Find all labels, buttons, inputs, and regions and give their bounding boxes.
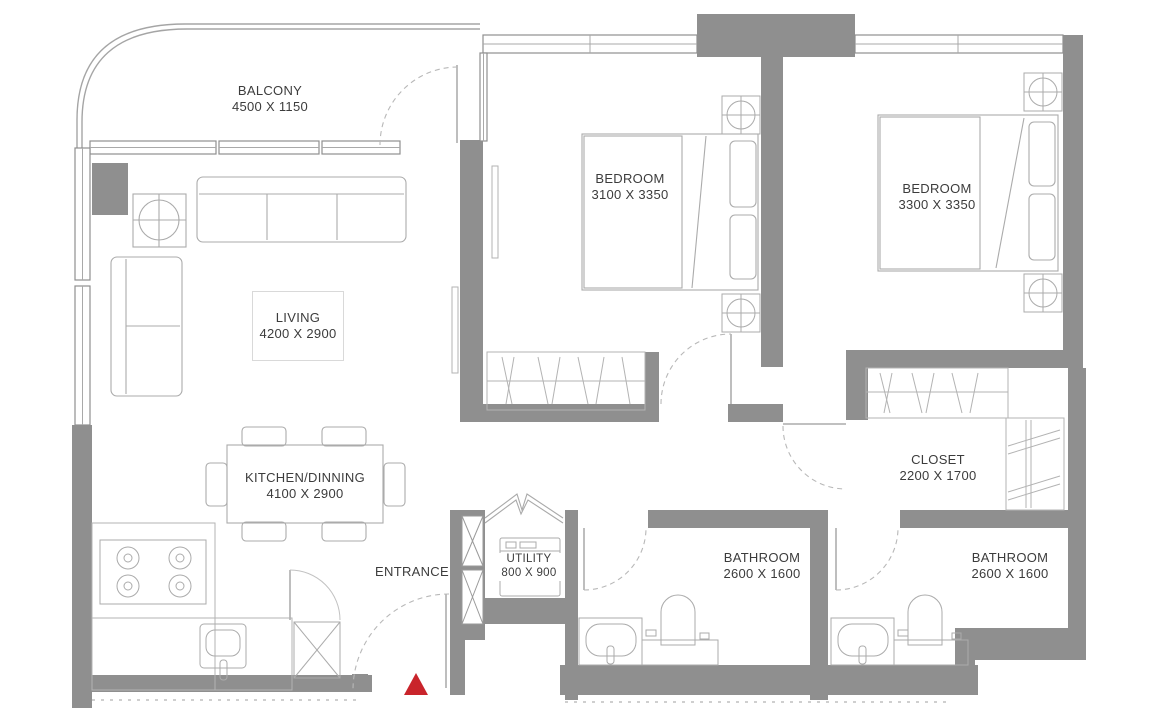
bathroom-1-fixtures (579, 595, 718, 665)
entrance-arrow-marker (404, 673, 428, 695)
room-name: KITCHEN/DINNING (227, 470, 383, 486)
stove (100, 540, 206, 604)
room-dims: 3100 X 3350 (555, 187, 705, 203)
folding-door (485, 494, 563, 523)
wall-panel (452, 166, 498, 373)
utility-label: UTILITY 800 X 900 (495, 553, 563, 581)
room-dims: 4200 X 2900 (253, 326, 343, 342)
bed-1 (582, 134, 758, 290)
wardrobe-bedroom-1 (487, 352, 645, 410)
boundary-hatch (92, 700, 950, 702)
room-name: BATHROOM (935, 550, 1085, 566)
room-dims: 4100 X 2900 (227, 486, 383, 502)
bathroom-2-label: BATHROOM 2600 X 1600 (935, 550, 1085, 581)
room-name: BATHROOM (687, 550, 837, 566)
room-name: UTILITY (495, 553, 563, 567)
closet-label: CLOSET 2200 X 1700 (858, 452, 1018, 483)
side-table-lamp (133, 194, 186, 247)
entrance-label: ENTRANCE (347, 564, 477, 580)
balcony-label: BALCONY 4500 X 1150 (195, 83, 345, 114)
room-dims: 2200 X 1700 (858, 468, 1018, 484)
room-name: BEDROOM (555, 171, 705, 187)
room-name: BALCONY (195, 83, 345, 99)
room-name: LIVING (253, 310, 343, 326)
bathroom-2-fixtures (831, 595, 968, 665)
kitchen-dining-label: KITCHEN/DINNING 4100 X 2900 (227, 470, 383, 501)
room-name: CLOSET (858, 452, 1018, 468)
cabinet-door-arc (290, 570, 340, 620)
room-name: BEDROOM (862, 181, 1012, 197)
bathroom-1-label: BATHROOM 2600 X 1600 (687, 550, 837, 581)
dishwasher (294, 622, 340, 678)
kitchen-sink (200, 624, 246, 680)
entrance-text: ENTRANCE (347, 564, 477, 580)
wardrobe-bedroom-2 (866, 368, 1008, 418)
bedroom-1-label: BEDROOM 3100 X 3350 (555, 171, 705, 202)
room-dims: 2600 X 1600 (935, 566, 1085, 582)
room-dims: 3300 X 3350 (862, 197, 1012, 213)
sofa-small (111, 257, 182, 396)
room-dims: 4500 X 1150 (195, 99, 345, 115)
bedroom-2-label: BEDROOM 3300 X 3350 (862, 181, 1012, 212)
room-dims: 800 X 900 (495, 567, 563, 581)
floor-plan: BALCONY 4500 X 1150 LIVING 4200 X 2900 K… (0, 0, 1152, 728)
sofa-large (197, 177, 406, 242)
kitchen-counter (92, 523, 292, 690)
living-label: LIVING 4200 X 2900 (252, 291, 344, 361)
door-leaves (290, 65, 846, 688)
room-dims: 2600 X 1600 (687, 566, 837, 582)
floorplan-linework (0, 0, 1152, 728)
